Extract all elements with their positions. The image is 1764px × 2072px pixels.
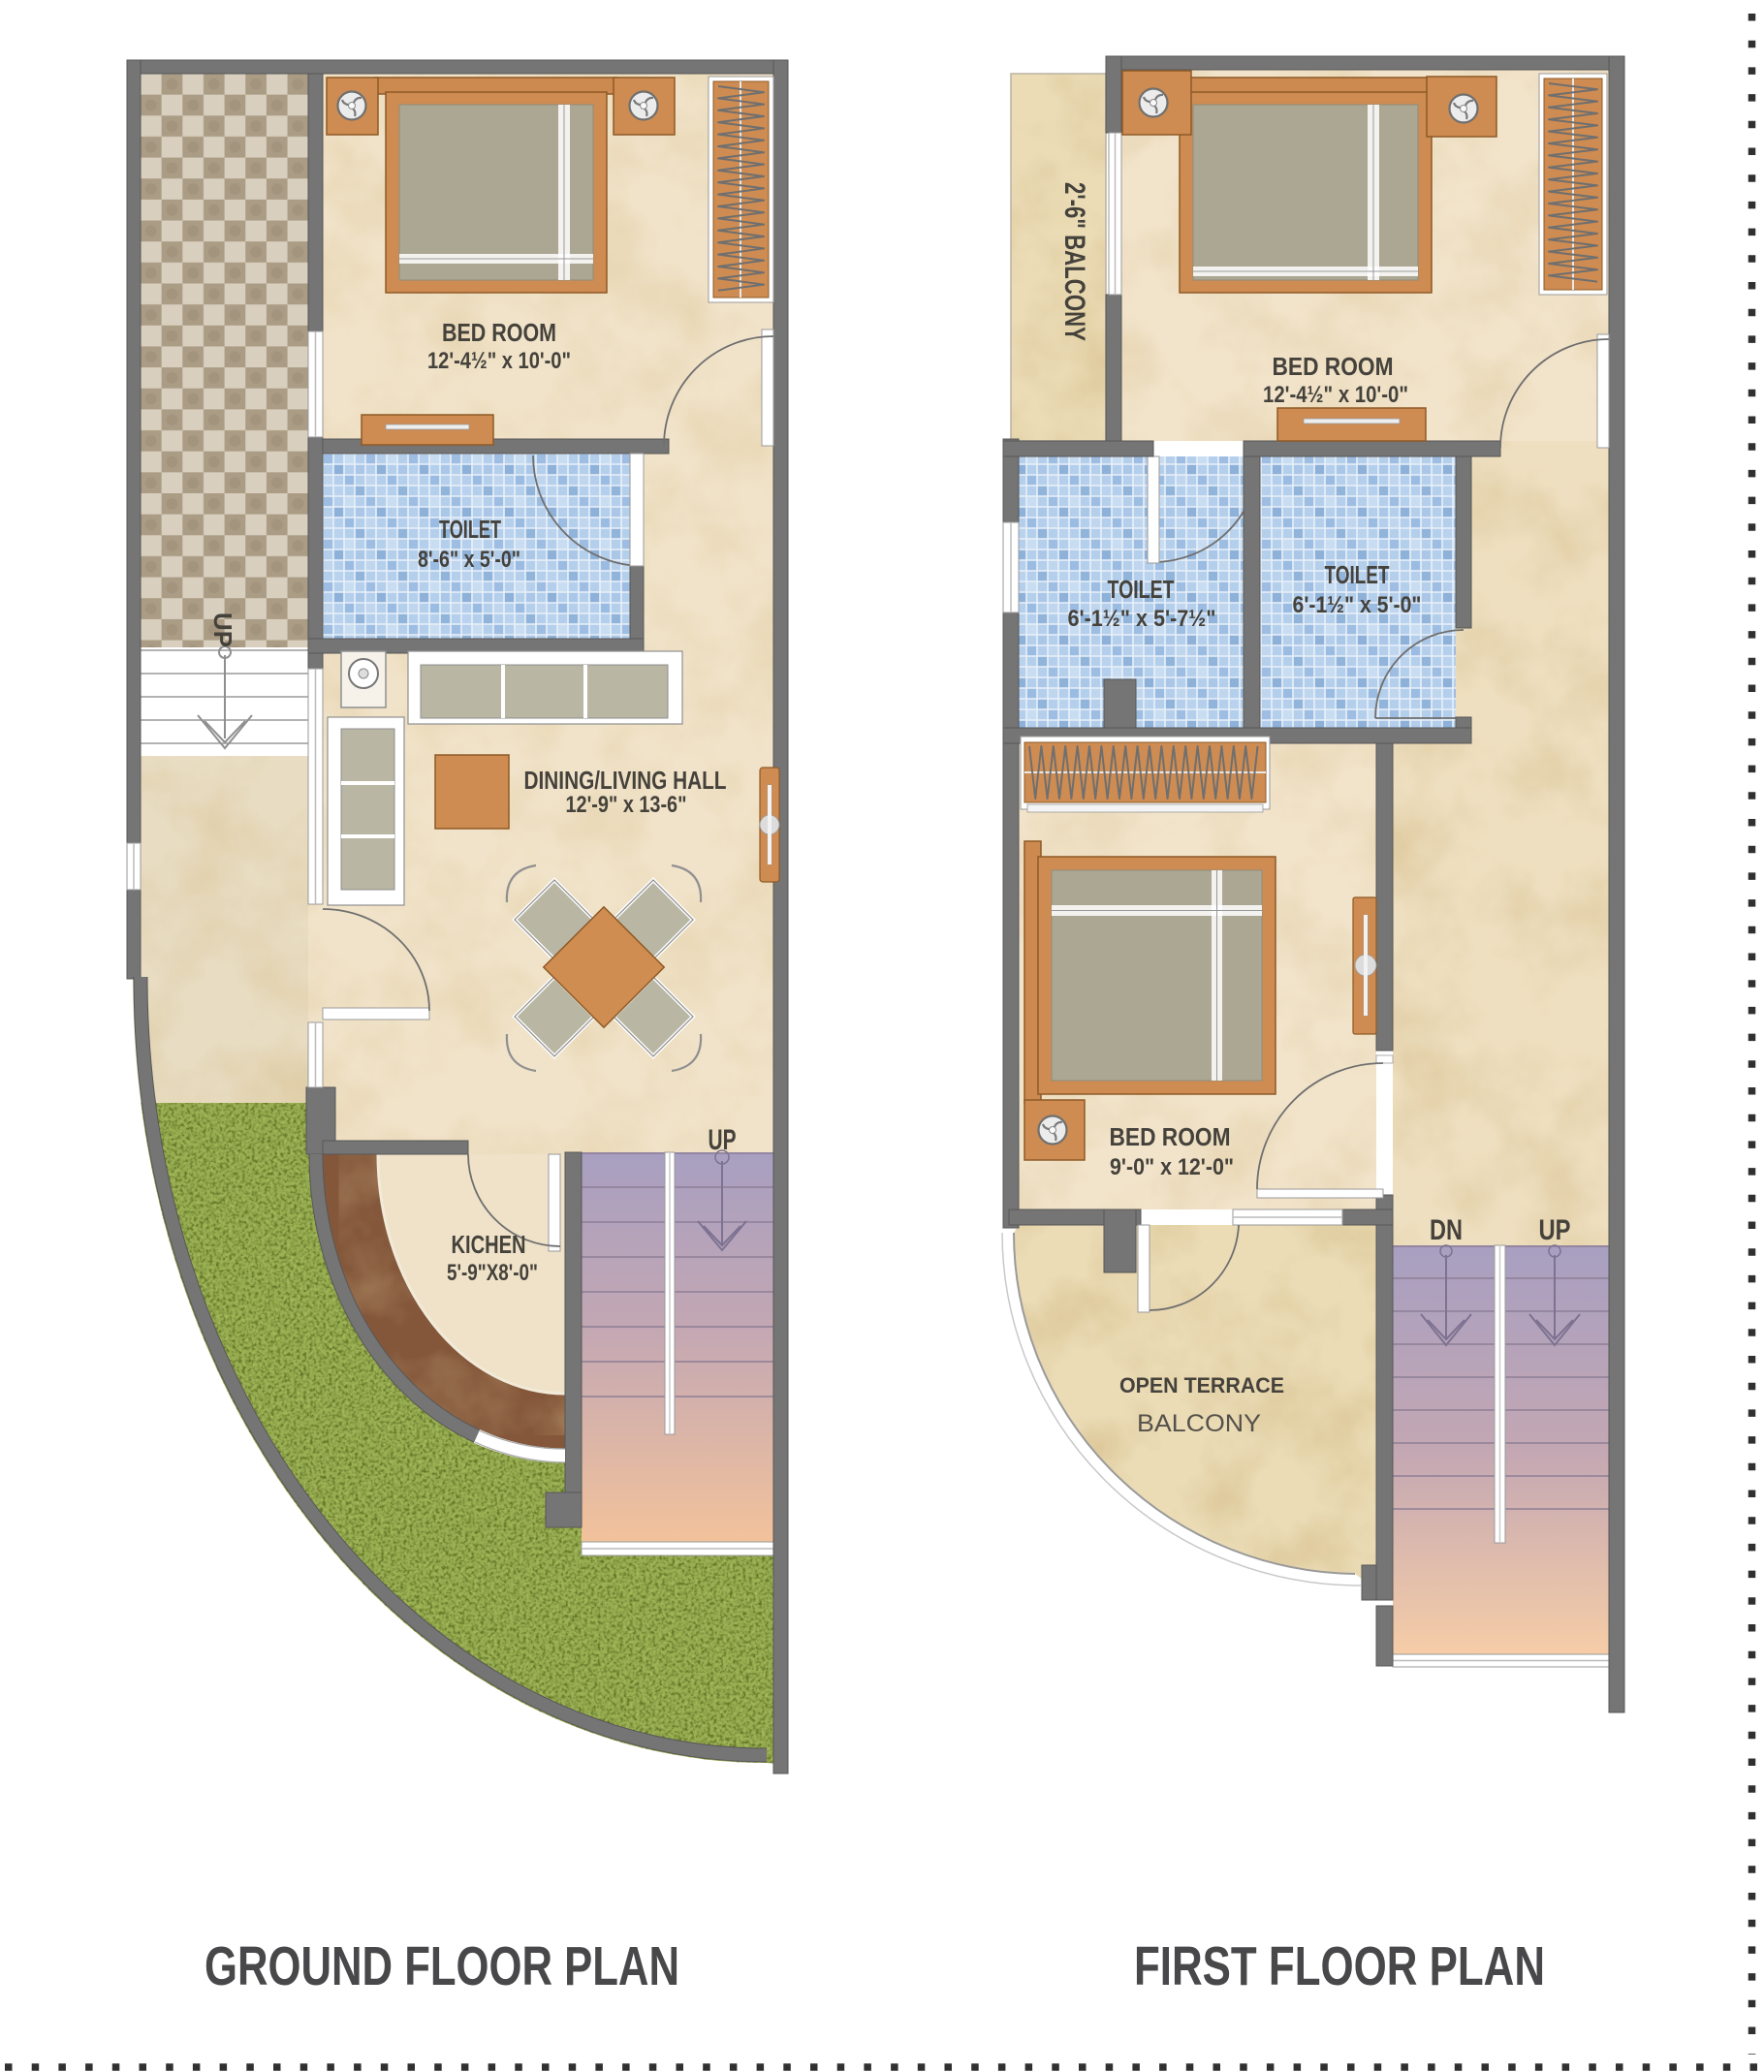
svg-text:BALCONY: BALCONY xyxy=(1137,1410,1261,1437)
svg-text:DN: DN xyxy=(1430,1214,1463,1246)
svg-text:TOILET: TOILET xyxy=(1325,560,1390,589)
svg-text:6'-1½" x 5'-7½": 6'-1½" x 5'-7½" xyxy=(1068,606,1216,632)
svg-text:TOILET: TOILET xyxy=(439,515,501,544)
svg-text:GROUND FLOOR PLAN: GROUND FLOOR PLAN xyxy=(205,1935,679,1997)
svg-text:5'-9"X8'-0": 5'-9"X8'-0" xyxy=(447,1260,538,1286)
svg-text:9'-0" x 12'-0": 9'-0" x 12'-0" xyxy=(1110,1154,1234,1180)
svg-text:BED ROOM: BED ROOM xyxy=(442,318,556,347)
svg-text:2'-6" BALCONY: 2'-6" BALCONY xyxy=(1058,182,1090,341)
svg-text:BED ROOM: BED ROOM xyxy=(1273,352,1394,381)
svg-text:12'-9" x 13-6": 12'-9" x 13-6" xyxy=(566,792,687,818)
svg-text:12'-4½" x 10'-0": 12'-4½" x 10'-0" xyxy=(1263,382,1408,408)
svg-text:6'-1½" x 5'-0": 6'-1½" x 5'-0" xyxy=(1293,592,1422,618)
svg-text:FIRST FLOOR PLAN: FIRST FLOOR PLAN xyxy=(1134,1935,1545,1997)
svg-text:TOILET: TOILET xyxy=(1108,575,1175,604)
svg-text:12'-4½" x 10'-0": 12'-4½" x 10'-0" xyxy=(427,348,571,374)
svg-text:OPEN TERRACE: OPEN TERRACE xyxy=(1119,1373,1284,1397)
svg-text:UP: UP xyxy=(208,612,237,647)
svg-text:UP: UP xyxy=(709,1124,737,1156)
svg-text:BED ROOM: BED ROOM xyxy=(1110,1122,1231,1151)
svg-text:8'-6" x 5'-0": 8'-6" x 5'-0" xyxy=(418,547,520,573)
svg-text:UP: UP xyxy=(1539,1214,1571,1246)
svg-text:DINING/LIVING HALL: DINING/LIVING HALL xyxy=(524,766,727,795)
svg-text:KICHEN: KICHEN xyxy=(452,1230,526,1259)
